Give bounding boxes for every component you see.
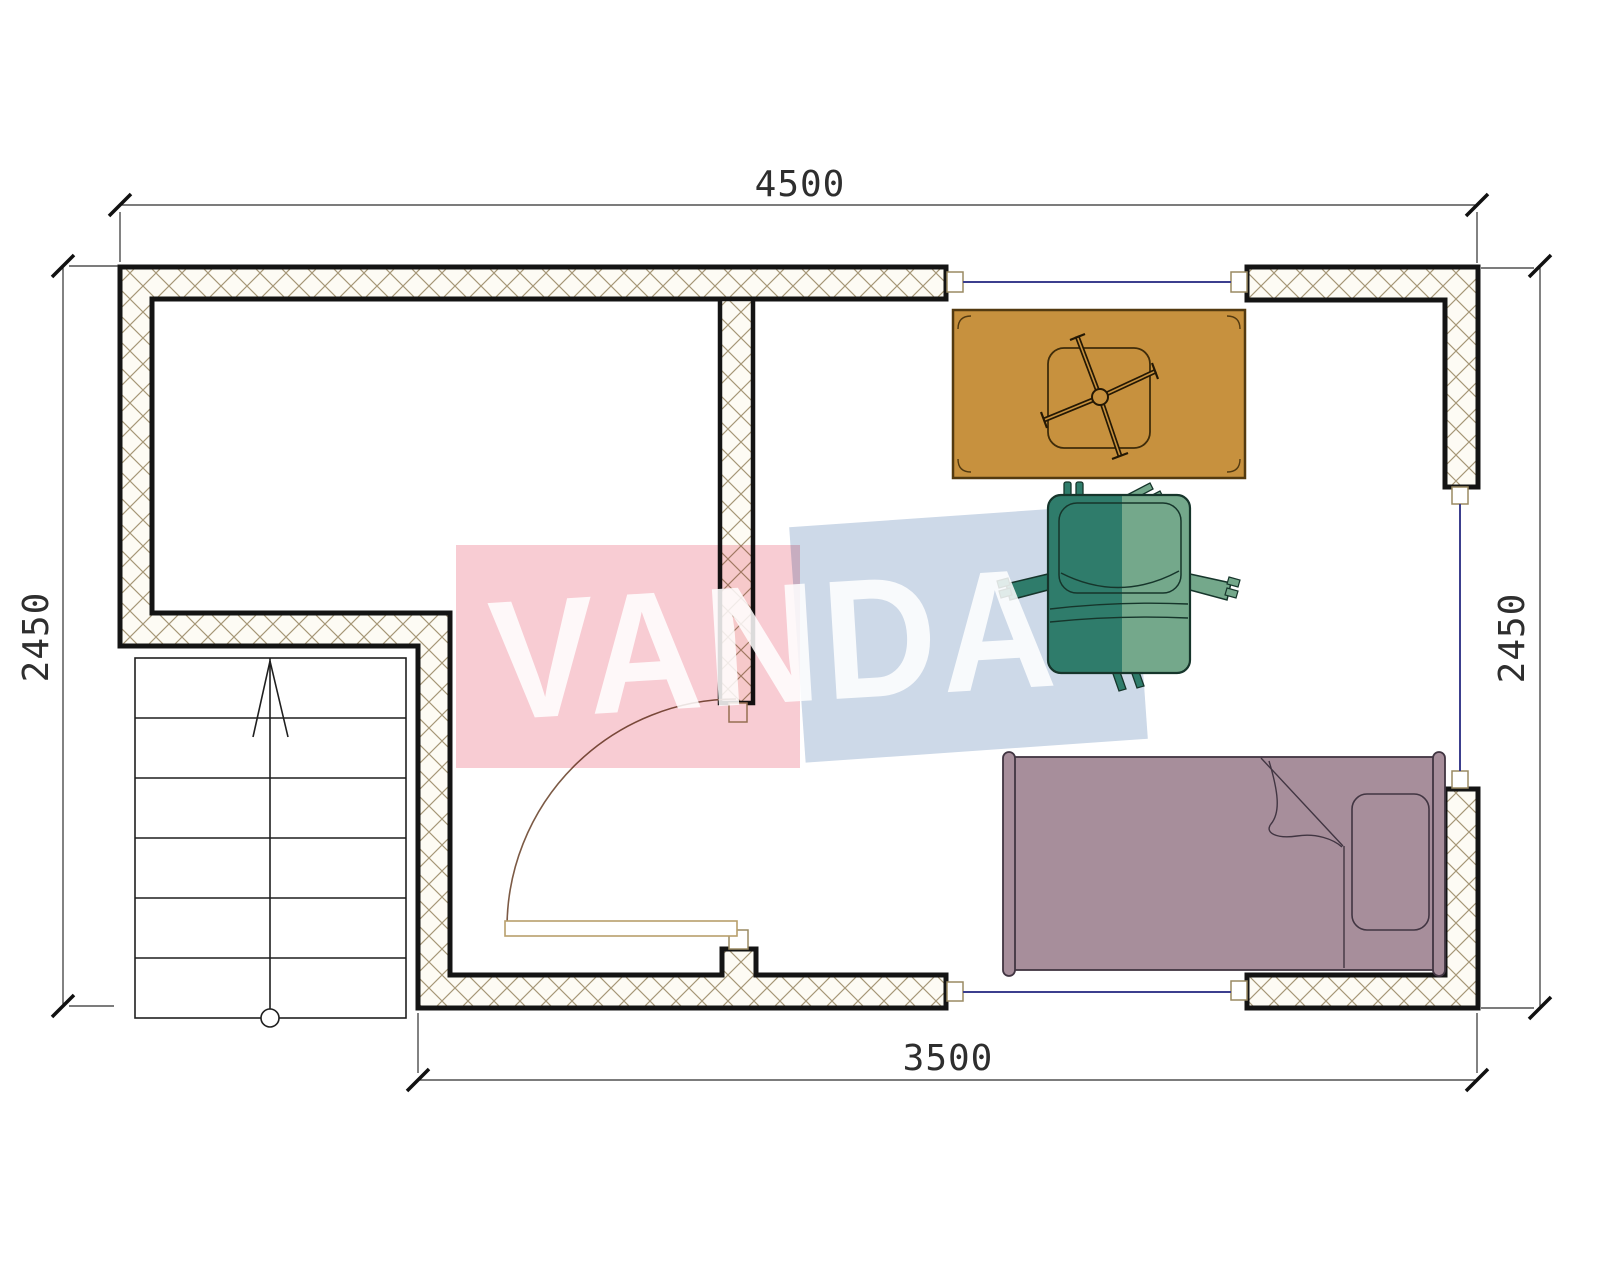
bed: [1003, 752, 1445, 976]
bed-post-left: [1003, 752, 1015, 976]
armrest-right: [1190, 574, 1231, 600]
floor-plan-canvas: 4500 2450 2450 3500: [0, 0, 1600, 1280]
table: [953, 310, 1245, 478]
pillow: [1352, 794, 1429, 930]
watermark-text: VANDA: [485, 542, 1063, 746]
bed-post-right: [1433, 752, 1445, 976]
